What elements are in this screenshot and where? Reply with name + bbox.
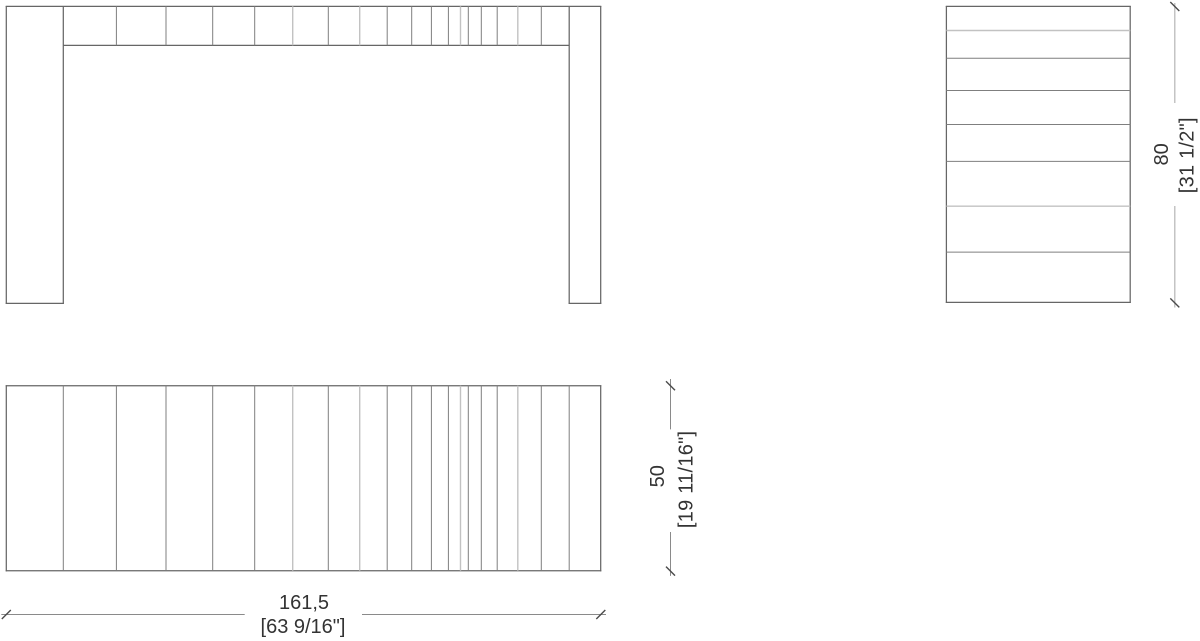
svg-text:[19 11/16"]: [19 11/16"] — [676, 431, 698, 528]
svg-text:[63 9/16"]: [63 9/16"] — [261, 616, 346, 638]
svg-text:[31 1/2"]: [31 1/2"] — [1176, 117, 1198, 193]
svg-text:80: 80 — [1151, 143, 1173, 165]
svg-text:161,5: 161,5 — [279, 592, 329, 614]
svg-text:50: 50 — [647, 465, 669, 487]
